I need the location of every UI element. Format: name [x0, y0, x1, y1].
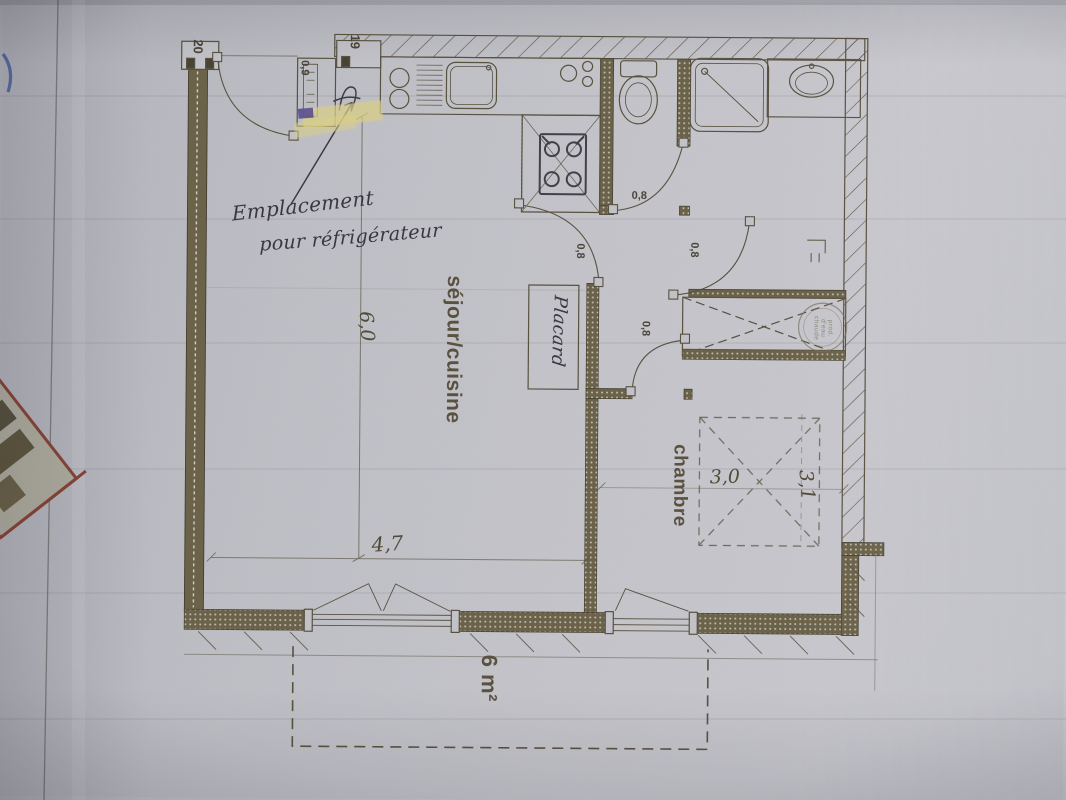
dim-bedroom-width: 3,0 [709, 468, 740, 488]
grid-ref-20: 20 [192, 39, 205, 54]
stamp-text-line: prod. [826, 308, 833, 348]
balcony-area-label: 6 m² [478, 655, 500, 702]
dim-living-width: 4,7 [371, 533, 404, 555]
dim-living-depth: 6,0 [356, 311, 377, 342]
room-label-bedroom: chambre [670, 444, 690, 527]
floorplan-drawing: 20 19 0,9 0,8 0,8 0,8 0,8 séjour/cuisine… [0, 0, 1066, 800]
door-width-label-bathroom: 0,8 [688, 242, 699, 257]
door-width-label-bedroom: 0,8 [640, 321, 651, 336]
photo-grain [0, 0, 1066, 800]
grid-ref-19: 19 [349, 35, 362, 50]
stamp-text-line: chaude [812, 308, 819, 348]
stamp-text-line: d'eau [819, 308, 826, 348]
room-label-living: séjour/cuisine [443, 275, 465, 423]
door-width-label-living: 0,8 [574, 243, 585, 258]
door-width-label-wc: 0,8 [632, 191, 647, 202]
dim-bedroom-depth: 3,1 [796, 469, 817, 501]
stamp-text: prod. d'eau chaude [812, 308, 833, 348]
closet-label: Placard [548, 294, 569, 368]
floorplan-photo: 20 19 0,9 0,8 0,8 0,8 0,8 séjour/cuisine… [0, 0, 1066, 800]
purple-pen-mark [298, 108, 314, 119]
entrance-door-width-label: 0,9 [299, 60, 310, 75]
